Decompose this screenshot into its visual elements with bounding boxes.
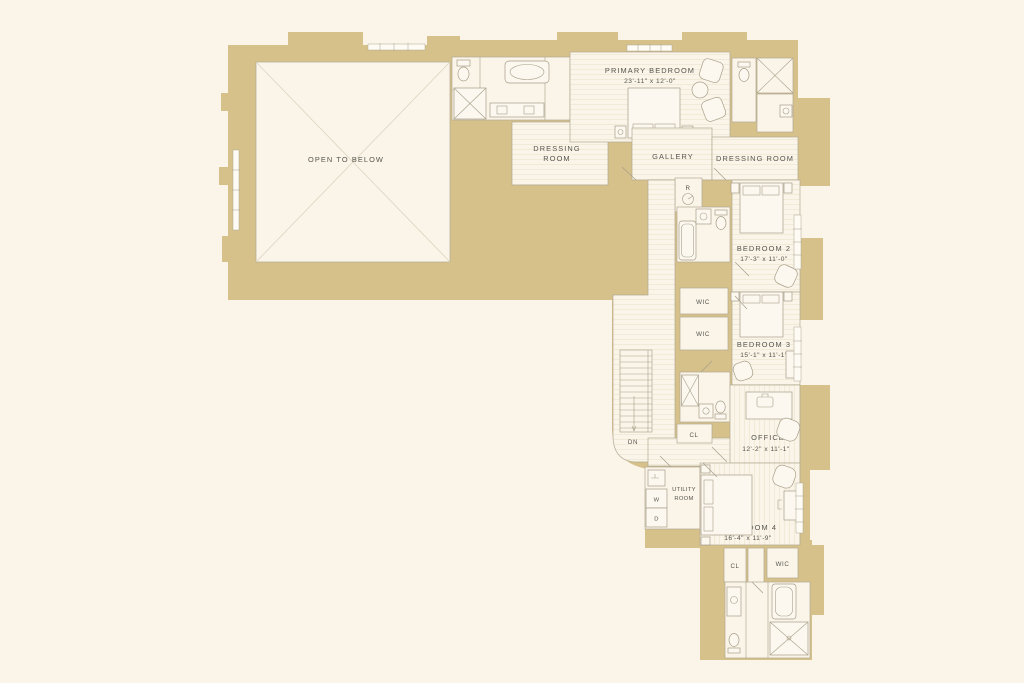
room-closet-bottom: CL (724, 548, 746, 582)
window-bedroom3 (793, 327, 802, 381)
dressing-right-label: DRESSING ROOM (716, 154, 794, 163)
washer-label: W (654, 498, 660, 504)
primary-bedroom-dims: 23'-11" x 12'-0" (624, 78, 676, 85)
office-desk (746, 392, 792, 419)
utility-label-2: ROOM (674, 496, 693, 502)
floorplan-svg: OPEN TO BELOW DRESSING ROOM PRIMARY BEDR… (0, 0, 1024, 683)
room-bath2 (677, 207, 730, 262)
bedroom4-desk (784, 491, 797, 520)
wic-bottom-label: WIC (776, 561, 790, 568)
room-open-to-below: OPEN TO BELOW (256, 62, 450, 262)
bedroom3-label: BEDROOM 3 (737, 340, 791, 349)
stairs: DN (620, 350, 652, 446)
floorplan-canvas: OPEN TO BELOW DRESSING ROOM PRIMARY BEDR… (0, 0, 1024, 683)
room-bedroom-3: BEDROOM 3 15'-1" x 11'-1" (731, 292, 800, 385)
bedroom3-bed (731, 292, 792, 337)
window-top-primary (627, 44, 672, 52)
bedroom2-bed (731, 183, 792, 233)
room-wic-bottom: WIC (767, 548, 798, 578)
room-closet-office: CL (677, 424, 712, 443)
riser-label: R (685, 185, 690, 192)
bedroom4-dims: 16'-4" x 11'-9" (724, 535, 772, 542)
wic-lower-label: WIC (696, 331, 710, 338)
window-bedroom4 (795, 483, 804, 533)
room-bath4 (725, 582, 810, 658)
room-dressing-right: DRESSING ROOM (712, 137, 798, 180)
room-primary-bath (452, 57, 570, 120)
room-bath2-top (732, 58, 793, 132)
dressing-left-label-2: ROOM (543, 154, 570, 163)
stairs-dn-label: DN (628, 439, 638, 446)
gallery-label: GALLERY (652, 152, 694, 161)
bedroom2-dims: 17'-3" x 11'-0" (740, 256, 788, 263)
room-wic-upper: WIC (680, 288, 728, 314)
room-bedroom-2: BEDROOM 2 17'-3" x 11'-0" (731, 180, 800, 292)
utility-label-1: UTILITY (672, 487, 696, 493)
dressing-left-label-1: DRESSING (533, 144, 580, 153)
room-wic-lower: WIC (680, 317, 728, 350)
room-office: OFFICE 12'-2" x 11'-1" (730, 385, 802, 463)
wic-upper-label: WIC (696, 299, 710, 306)
dryer-label: D (654, 517, 659, 523)
primary-bedroom-label: PRIMARY BEDROOM (605, 66, 695, 75)
room-utility: UTILITY ROOM W D (645, 467, 700, 529)
room-bath3 (680, 372, 730, 422)
closet-bottom-label: CL (730, 563, 739, 570)
room-gallery: GALLERY (632, 128, 712, 180)
bedroom3-dims: 15'-1" x 11'-1" (740, 352, 788, 359)
window-top-left (368, 43, 425, 51)
bottom-entry-hall (748, 548, 764, 584)
bedroom4-bed (701, 465, 752, 545)
window-left (232, 150, 240, 230)
open-to-below-label: OPEN TO BELOW (308, 155, 384, 164)
office-dims: 12'-2" x 11'-1" (742, 446, 790, 453)
bedroom2-label: BEDROOM 2 (737, 244, 791, 253)
closet-office-label: CL (689, 432, 698, 439)
window-bedroom2 (793, 215, 802, 269)
